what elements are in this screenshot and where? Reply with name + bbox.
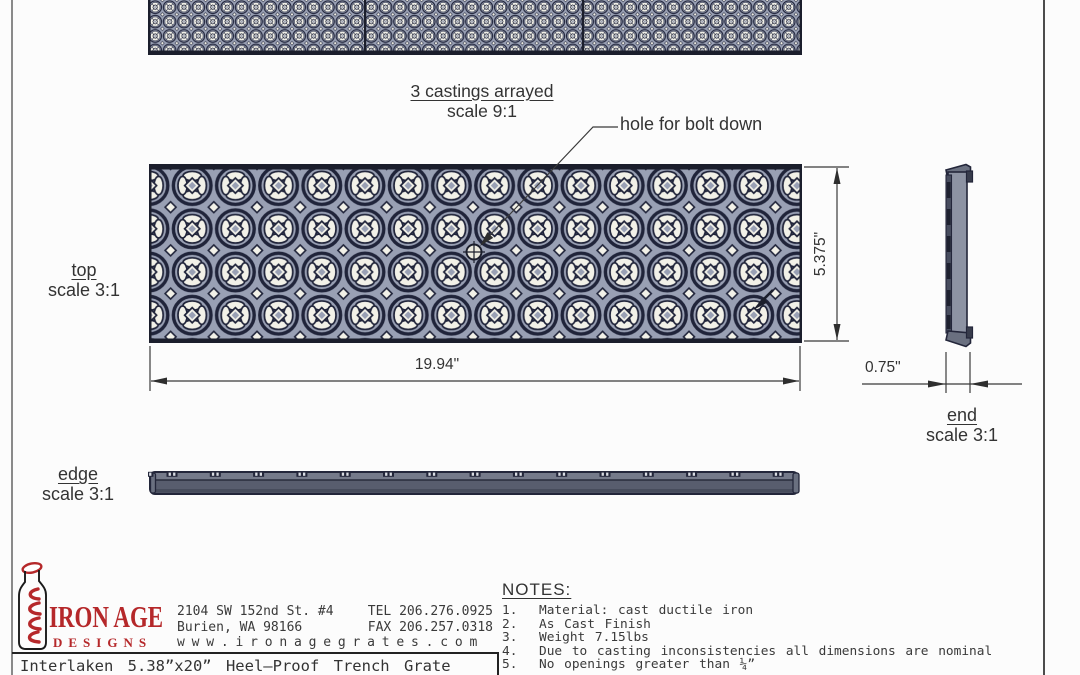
edge-view-label: edge scale 3:1 bbox=[42, 464, 114, 504]
length-dimension: 19.94" bbox=[415, 356, 459, 374]
thickness-dimension: 0.75" bbox=[865, 359, 901, 377]
note-item: 5. No openings greater than ¼” bbox=[502, 658, 992, 672]
end-view bbox=[941, 160, 977, 352]
end-view-label: end scale 3:1 bbox=[926, 405, 998, 445]
note-item: 1. Material: cast ductile iron bbox=[502, 604, 992, 618]
address-tel: TEL 206.276.0925 bbox=[368, 604, 493, 620]
notes-block: NOTES: 1. Material: cast ductile iron 2.… bbox=[502, 580, 992, 672]
product-title-bar: Interlaken 5.38”x20” Heel–Proof Trench G… bbox=[12, 652, 499, 675]
edge-view bbox=[148, 465, 802, 499]
company-address: 2104 SW 152nd St. #4 TEL 206.276.0925 Bu… bbox=[177, 604, 493, 651]
address-city: Burien, WA 98166 bbox=[177, 620, 302, 636]
arrayed-view-label: 3 castings arrayed scale 9:1 bbox=[411, 82, 554, 121]
product-title: Interlaken 5.38”x20” Heel–Proof Trench G… bbox=[20, 657, 451, 675]
sheet-right-border bbox=[1043, 0, 1045, 675]
brand-subtitle: DESIGNS bbox=[53, 635, 152, 651]
address-street: 2104 SW 152nd St. #4 bbox=[177, 604, 334, 620]
note-item: 4. Due to casting inconsistencies all di… bbox=[502, 645, 992, 659]
bottle-logo-icon bbox=[12, 560, 54, 654]
note-item: 3. Weight 7.15lbs bbox=[502, 631, 992, 645]
brand-name: IRON AGE bbox=[49, 599, 163, 635]
drawing-sheet: 3 castings arrayed scale 9:1 hole for bo… bbox=[0, 0, 1080, 675]
notes-heading: NOTES: bbox=[502, 580, 992, 600]
top-view bbox=[149, 164, 802, 343]
arrayed-castings-view bbox=[148, 0, 802, 56]
top-view-label: top scale 3:1 bbox=[48, 260, 120, 300]
note-item: 2. As Cast Finish bbox=[502, 618, 992, 632]
address-fax: FAX 206.257.0318 bbox=[368, 620, 493, 636]
width-dimension: 5.375" bbox=[812, 232, 830, 276]
bolt-hole-callout: hole for bolt down bbox=[620, 114, 762, 135]
company-website: www.ironagegrates.com bbox=[177, 635, 493, 651]
